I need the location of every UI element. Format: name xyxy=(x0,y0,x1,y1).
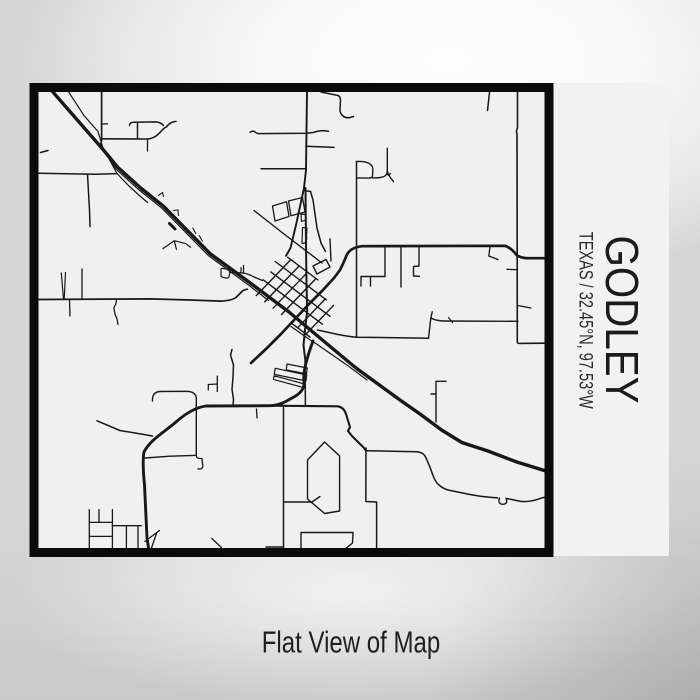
svg-text:GODLEY: GODLEY xyxy=(596,236,648,404)
svg-text:Flat View of Map: Flat View of Map xyxy=(262,624,441,659)
svg-text:TEXAS / 32.45°N, 97.53°W: TEXAS / 32.45°N, 97.53°W xyxy=(575,232,596,409)
